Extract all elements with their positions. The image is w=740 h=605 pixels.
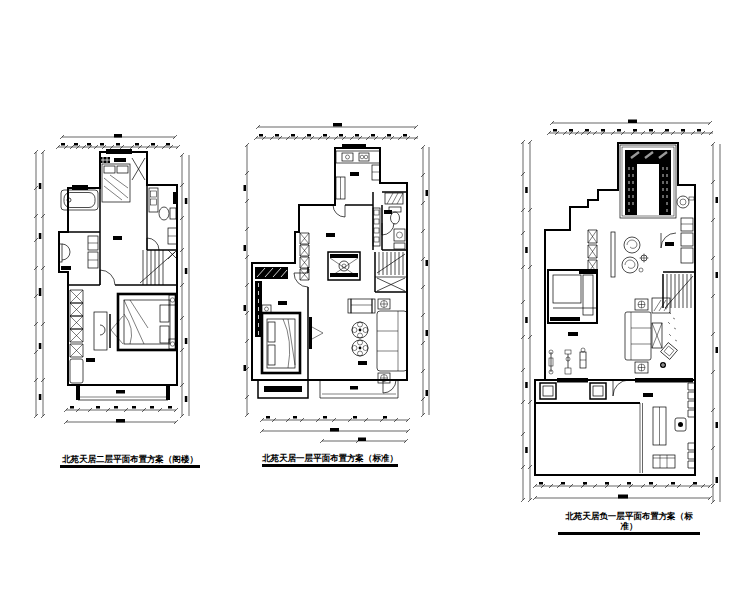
dimension-lines-right <box>180 153 189 418</box>
floor-plan-3 <box>513 112 728 512</box>
plan-3-caption-text: 北苑天居负一层平面布置方案（标准） <box>565 511 693 531</box>
label-blob-master <box>86 358 95 362</box>
gym-equipment <box>549 348 586 374</box>
plan-1-caption-underline <box>60 465 200 468</box>
tv-panel <box>611 232 615 277</box>
label-blob-hall <box>326 233 335 237</box>
lightwell-stair <box>620 145 676 218</box>
storage-room <box>548 270 597 323</box>
planter-column-2 <box>590 383 606 399</box>
dimension-lines-right <box>421 145 429 417</box>
dimension-lines-top <box>56 134 180 149</box>
floor-plan-1 <box>30 128 230 433</box>
tea-table-icon <box>352 322 368 338</box>
living-room <box>348 299 407 383</box>
planter-column <box>540 383 556 399</box>
toilet-room <box>149 188 177 244</box>
stairs <box>140 250 177 285</box>
dimension-lines-bottom <box>260 416 410 443</box>
stairs <box>663 274 693 308</box>
bench-sofa <box>653 455 675 468</box>
plan-3-caption: 北苑天居负一层平面布置方案（标准） <box>558 511 700 535</box>
sofa-set <box>625 298 677 373</box>
tea-table-icon-2 <box>352 340 368 356</box>
dimension-lines-left <box>244 143 250 417</box>
cad-sheet: 北苑天居二层平面布置方案（阁楼） <box>0 0 740 605</box>
sofa <box>377 311 407 371</box>
floor-plan-2-drawing <box>238 115 438 450</box>
bathroom <box>373 193 405 249</box>
lamp-table-icon <box>378 299 390 309</box>
swivel-chairs <box>622 237 649 273</box>
dimension-lines-top <box>254 123 418 140</box>
dimension-lines-bottom <box>64 406 178 424</box>
floor-plan-3-drawing <box>513 112 728 512</box>
dining-table <box>328 252 360 280</box>
lamp-table-icon-2 <box>378 373 390 383</box>
bedroom-door-arc <box>100 158 159 285</box>
dimension-lines-bottom <box>533 482 712 500</box>
label-blob-mid <box>568 332 578 336</box>
lamp-table-icon <box>635 299 648 310</box>
dimension-lines-top <box>547 120 713 136</box>
bedroom <box>255 267 323 373</box>
plan-1-caption: 北苑天居二层平面布置方案（阁楼） <box>60 454 200 468</box>
plan-1-caption-text: 北苑天居二层平面布置方案（阁楼） <box>62 454 198 464</box>
dimension-lines-left <box>34 150 45 418</box>
floor-plan-2 <box>238 115 438 450</box>
top-bedroom-bed <box>101 149 132 202</box>
stairs <box>375 252 407 291</box>
interior-walls <box>308 192 407 380</box>
plan-3-caption-underline <box>558 532 700 535</box>
bedroom-terrace <box>258 380 308 398</box>
master-bed <box>118 294 176 350</box>
hall-wardrobe <box>588 230 597 273</box>
balcony <box>76 385 170 400</box>
wall-cabinets <box>688 383 695 468</box>
desk <box>653 407 686 445</box>
master-wardrobe <box>70 290 83 383</box>
lamp-table-icon-2 <box>635 362 648 373</box>
dimension-lines-right <box>711 142 720 504</box>
dimension-lines-left <box>521 140 532 502</box>
washbasin-room <box>59 236 98 270</box>
label-blob-corridor <box>113 236 122 240</box>
lower-section <box>535 378 695 473</box>
plan-2-caption-underline <box>262 464 398 467</box>
plan-2-caption: 北苑天居一层平面布置方案（标准） <box>262 453 398 467</box>
plan-2-caption-text: 北苑天居一层平面布置方案（标准） <box>262 453 398 463</box>
floor-plan-1-drawing <box>30 128 230 433</box>
